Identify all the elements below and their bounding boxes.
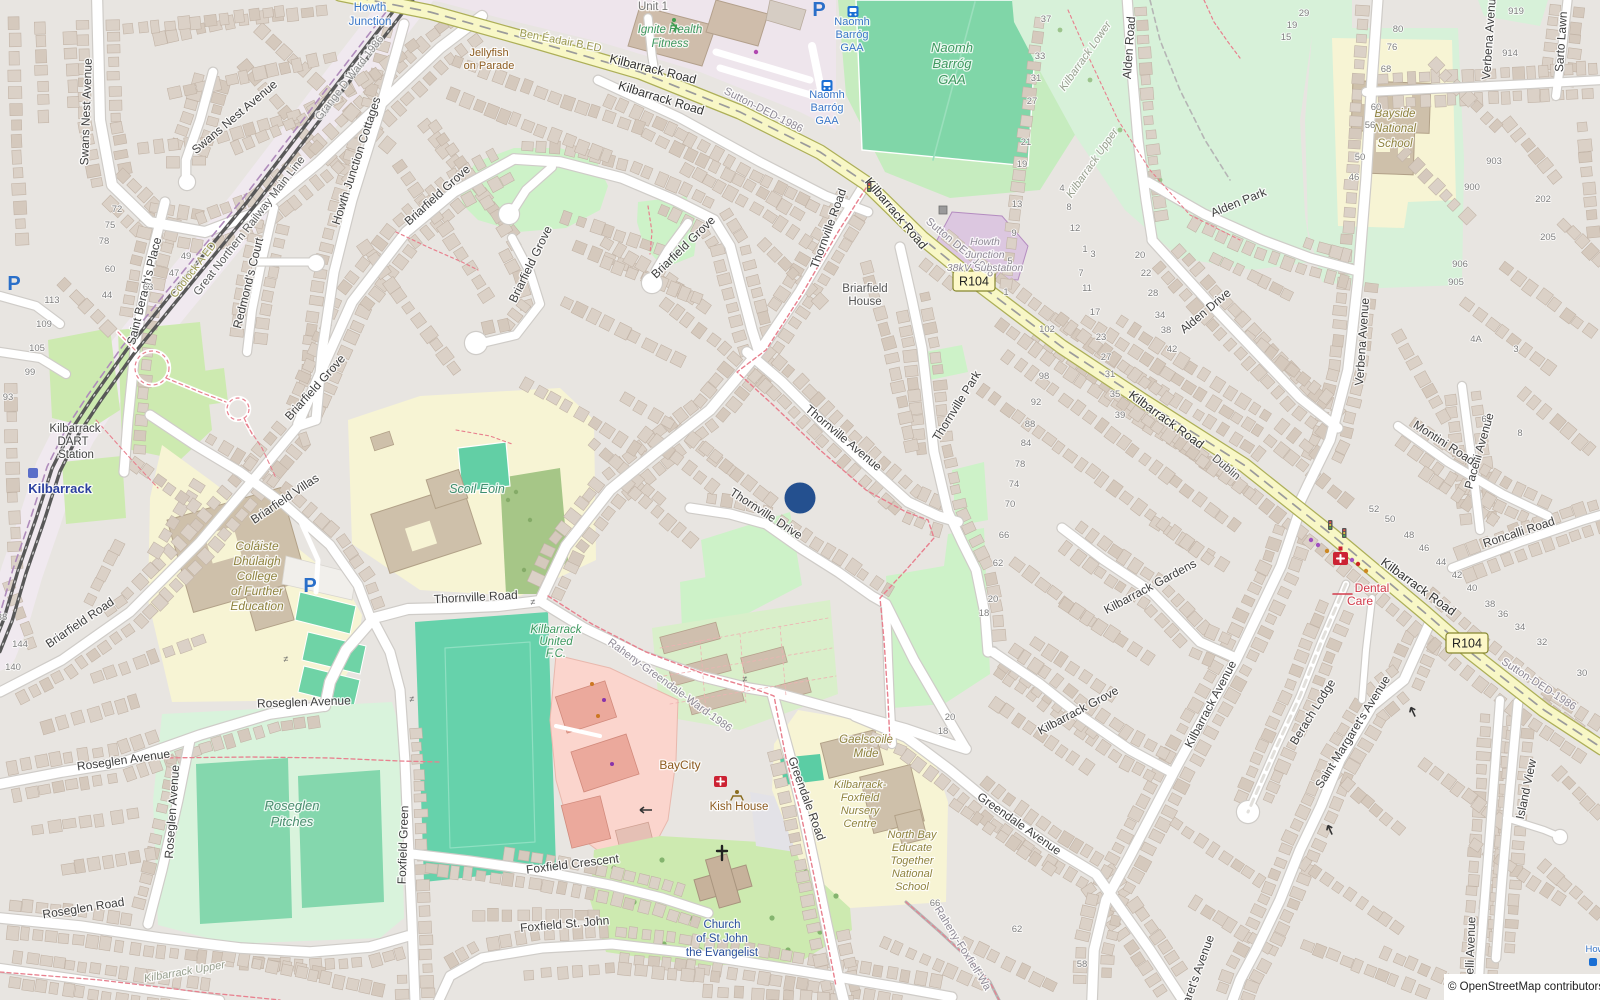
svg-text:49: 49 (181, 251, 192, 262)
svg-text:of Further: of Further (231, 584, 284, 598)
svg-text:Barróg: Barróg (932, 56, 972, 71)
svg-text:Fitness: Fitness (651, 38, 688, 50)
svg-text:5: 5 (1007, 256, 1012, 267)
svg-text:Foxfield Green: Foxfield Green (395, 805, 412, 884)
svg-text:College: College (237, 569, 278, 583)
svg-text:66: 66 (999, 530, 1010, 541)
svg-text:United: United (539, 636, 573, 648)
svg-text:68: 68 (1381, 64, 1392, 75)
svg-text:Care: Care (1347, 594, 1373, 608)
svg-text:R104: R104 (1452, 637, 1482, 651)
svg-text:Education: Education (230, 599, 284, 613)
svg-text:34: 34 (1155, 310, 1166, 321)
svg-text:GAA: GAA (938, 72, 965, 87)
svg-text:36: 36 (1498, 609, 1509, 620)
svg-text:North Bay: North Bay (888, 829, 938, 841)
svg-text:144: 144 (12, 639, 28, 650)
svg-text:31: 31 (1031, 73, 1042, 84)
svg-text:School: School (895, 881, 929, 893)
svg-text:© OpenStreetMap contributors: © OpenStreetMap contributors (1448, 981, 1600, 993)
svg-text:47: 47 (169, 268, 180, 279)
svg-text:How: How (1585, 944, 1600, 955)
svg-text:GAA: GAA (840, 42, 864, 54)
svg-text:140: 140 (5, 662, 21, 673)
svg-text:7: 7 (1078, 268, 1083, 279)
svg-text:National: National (1374, 123, 1417, 135)
svg-text:Station: Station (58, 449, 94, 461)
svg-text:93: 93 (3, 392, 14, 403)
svg-text:18: 18 (938, 726, 949, 737)
svg-text:≠: ≠ (743, 674, 748, 684)
svg-text:22: 22 (1141, 268, 1152, 279)
svg-text:84: 84 (1021, 438, 1032, 449)
svg-text:27: 27 (1027, 96, 1038, 107)
svg-text:Kish House: Kish House (710, 801, 769, 813)
svg-text:32: 32 (1537, 637, 1548, 648)
svg-text:98: 98 (1039, 371, 1050, 382)
svg-text:Ignite Health: Ignite Health (638, 24, 703, 36)
svg-text:R104: R104 (959, 275, 989, 289)
svg-text:78: 78 (1015, 459, 1026, 470)
svg-text:9: 9 (1011, 228, 1016, 239)
svg-text:21: 21 (1021, 137, 1032, 148)
svg-text:Kilbarrack: Kilbarrack (530, 624, 582, 636)
svg-text:58: 58 (1077, 959, 1088, 970)
svg-text:Junction: Junction (964, 249, 1004, 261)
svg-text:National: National (892, 868, 933, 880)
svg-text:60: 60 (1371, 102, 1382, 113)
svg-text:Kilbarrack: Kilbarrack (49, 423, 100, 435)
svg-text:Foxfield: Foxfield (841, 792, 880, 804)
svg-text:8: 8 (1066, 202, 1071, 213)
svg-text:4A: 4A (1470, 334, 1482, 345)
svg-text:113: 113 (44, 295, 59, 306)
svg-text:Pitches: Pitches (271, 814, 314, 829)
svg-text:4: 4 (1059, 183, 1064, 194)
svg-text:Coláiste: Coláiste (235, 539, 279, 553)
svg-text:11: 11 (1082, 283, 1092, 294)
svg-text:75: 75 (105, 220, 116, 231)
svg-text:Dhúlaigh: Dhúlaigh (233, 554, 281, 568)
svg-text:44: 44 (1436, 557, 1447, 568)
svg-text:1: 1 (1003, 287, 1008, 298)
svg-text:Kilbarrack-: Kilbarrack- (834, 779, 887, 791)
svg-text:60: 60 (105, 264, 116, 275)
svg-text:56: 56 (1365, 120, 1376, 131)
svg-text:19: 19 (1017, 159, 1028, 170)
svg-text:38: 38 (0, 612, 7, 623)
svg-text:29: 29 (1299, 8, 1310, 19)
svg-text:12: 12 (1070, 223, 1081, 234)
svg-text:50: 50 (1355, 152, 1366, 163)
svg-text:Gaelscoile: Gaelscoile (839, 734, 893, 746)
svg-text:P: P (303, 575, 316, 597)
svg-text:3: 3 (1090, 249, 1095, 260)
svg-text:≠: ≠ (284, 654, 289, 664)
svg-text:Kilbarrack: Kilbarrack (28, 481, 92, 496)
svg-text:914: 914 (1502, 48, 1518, 59)
svg-text:102: 102 (1039, 324, 1055, 335)
svg-text:44: 44 (102, 290, 113, 301)
svg-text:the Evangelist: the Evangelist (686, 947, 759, 959)
svg-text:Briarfield: Briarfield (842, 283, 887, 295)
svg-text:≠: ≠ (410, 694, 415, 704)
svg-text:GAA: GAA (815, 115, 839, 127)
svg-text:50: 50 (1385, 514, 1396, 525)
svg-text:46: 46 (1419, 543, 1430, 554)
svg-text:Church: Church (703, 919, 740, 931)
svg-text:Barróg: Barróg (835, 29, 868, 41)
svg-text:Roseglen: Roseglen (265, 798, 320, 813)
svg-text:20: 20 (945, 712, 956, 723)
svg-text:Dental: Dental (1355, 581, 1390, 595)
svg-text:20: 20 (988, 594, 999, 605)
svg-text:34: 34 (1515, 622, 1526, 633)
svg-text:Junction: Junction (349, 16, 392, 28)
svg-text:23: 23 (1096, 332, 1107, 343)
svg-text:905: 905 (1448, 277, 1464, 288)
svg-text:62: 62 (993, 558, 1004, 569)
svg-text:P: P (812, 0, 825, 21)
svg-text:Nursery: Nursery (841, 805, 881, 817)
svg-text:School: School (1377, 138, 1413, 150)
svg-text:66: 66 (930, 898, 941, 909)
svg-text:≠: ≠ (531, 597, 536, 607)
svg-text:39: 39 (1115, 410, 1126, 421)
svg-text:Naomh: Naomh (931, 40, 973, 55)
svg-text:37: 37 (1041, 14, 1052, 25)
svg-text:99: 99 (25, 367, 36, 378)
svg-text:Howth: Howth (354, 2, 387, 14)
svg-text:Jellyfish: Jellyfish (469, 47, 508, 59)
svg-text:46: 46 (1349, 172, 1360, 183)
svg-text:Together: Together (890, 855, 934, 867)
svg-text:31: 31 (1105, 369, 1116, 380)
svg-text:33: 33 (1035, 51, 1046, 62)
svg-text:109: 109 (36, 319, 52, 330)
svg-text:63: 63 (143, 282, 154, 293)
svg-text:903: 903 (1486, 156, 1502, 167)
svg-text:88: 88 (1025, 419, 1036, 430)
svg-text:92: 92 (1031, 397, 1042, 408)
svg-text:52: 52 (1369, 504, 1380, 515)
svg-text:28: 28 (1148, 288, 1159, 299)
svg-text:80: 80 (1393, 24, 1404, 35)
svg-text:House: House (848, 296, 881, 308)
svg-text:202: 202 (1535, 194, 1551, 205)
svg-text:on Parade: on Parade (464, 60, 515, 72)
svg-text:76: 76 (1387, 42, 1398, 53)
svg-text:42: 42 (1452, 570, 1463, 581)
svg-text:18: 18 (979, 608, 990, 619)
svg-text:P: P (7, 273, 20, 295)
svg-text:62: 62 (1012, 924, 1023, 935)
svg-text:17: 17 (1090, 307, 1101, 318)
svg-text:Educate: Educate (892, 842, 932, 854)
svg-text:20: 20 (1135, 250, 1146, 261)
svg-text:BayCity: BayCity (659, 758, 700, 772)
svg-text:30: 30 (1577, 668, 1588, 679)
svg-text:105: 105 (29, 343, 45, 354)
svg-text:900: 900 (1464, 182, 1480, 193)
svg-text:3: 3 (1513, 344, 1518, 355)
svg-text:42: 42 (1167, 344, 1178, 355)
svg-text:27: 27 (1101, 352, 1112, 363)
svg-text:906: 906 (1452, 259, 1468, 270)
svg-text:205: 205 (1540, 232, 1556, 243)
svg-text:38: 38 (1485, 599, 1496, 610)
svg-text:13: 13 (1012, 199, 1023, 210)
svg-text:72: 72 (112, 204, 123, 215)
svg-text:40: 40 (1467, 583, 1478, 594)
svg-text:Scoil Eoin: Scoil Eoin (449, 482, 505, 496)
svg-text:Naomh: Naomh (834, 16, 869, 28)
svg-text:of St John: of St John (696, 933, 748, 945)
svg-text:DART: DART (57, 436, 88, 448)
svg-text:919: 919 (1508, 6, 1524, 17)
svg-text:19: 19 (1287, 20, 1298, 31)
svg-text:F.C.: F.C. (546, 648, 566, 660)
svg-text:74: 74 (1009, 479, 1020, 490)
svg-text:6: 6 (1481, 414, 1486, 425)
svg-text:Barróg: Barróg (810, 102, 843, 114)
svg-text:78: 78 (99, 236, 110, 247)
svg-text:70: 70 (1005, 499, 1016, 510)
svg-text:8: 8 (1517, 428, 1522, 439)
svg-text:Unit 1: Unit 1 (638, 1, 668, 13)
svg-text:1: 1 (1082, 244, 1087, 255)
svg-text:38: 38 (1161, 325, 1172, 336)
svg-text:Centre: Centre (843, 818, 876, 830)
svg-text:48: 48 (1404, 530, 1415, 541)
svg-text:Howth: Howth (970, 236, 1000, 248)
svg-text:Mide: Mide (854, 748, 879, 760)
svg-text:35: 35 (1110, 389, 1121, 400)
svg-text:15: 15 (1281, 32, 1292, 43)
